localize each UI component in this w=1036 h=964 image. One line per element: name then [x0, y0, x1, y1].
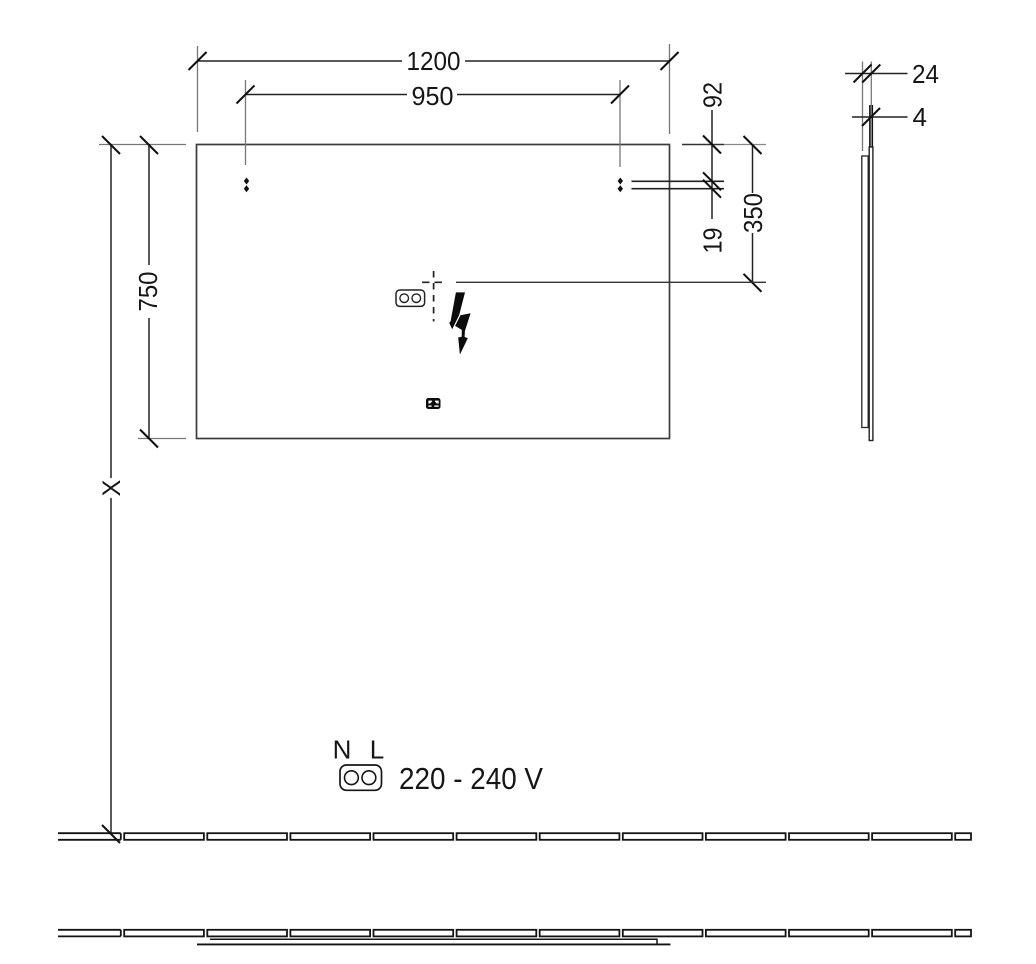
svg-text:1200: 1200 [407, 46, 461, 76]
svg-text:24: 24 [912, 59, 939, 89]
svg-text:220 - 240 V: 220 - 240 V [399, 761, 543, 796]
svg-text:350: 350 [738, 193, 768, 233]
svg-text:750: 750 [133, 272, 163, 312]
svg-text:92: 92 [698, 82, 728, 108]
svg-text:X: X [98, 479, 126, 496]
svg-text:4: 4 [913, 102, 927, 132]
svg-text:19: 19 [698, 228, 728, 254]
svg-text:L: L [370, 735, 384, 765]
svg-text:950: 950 [412, 81, 454, 111]
svg-text:N: N [333, 735, 352, 765]
